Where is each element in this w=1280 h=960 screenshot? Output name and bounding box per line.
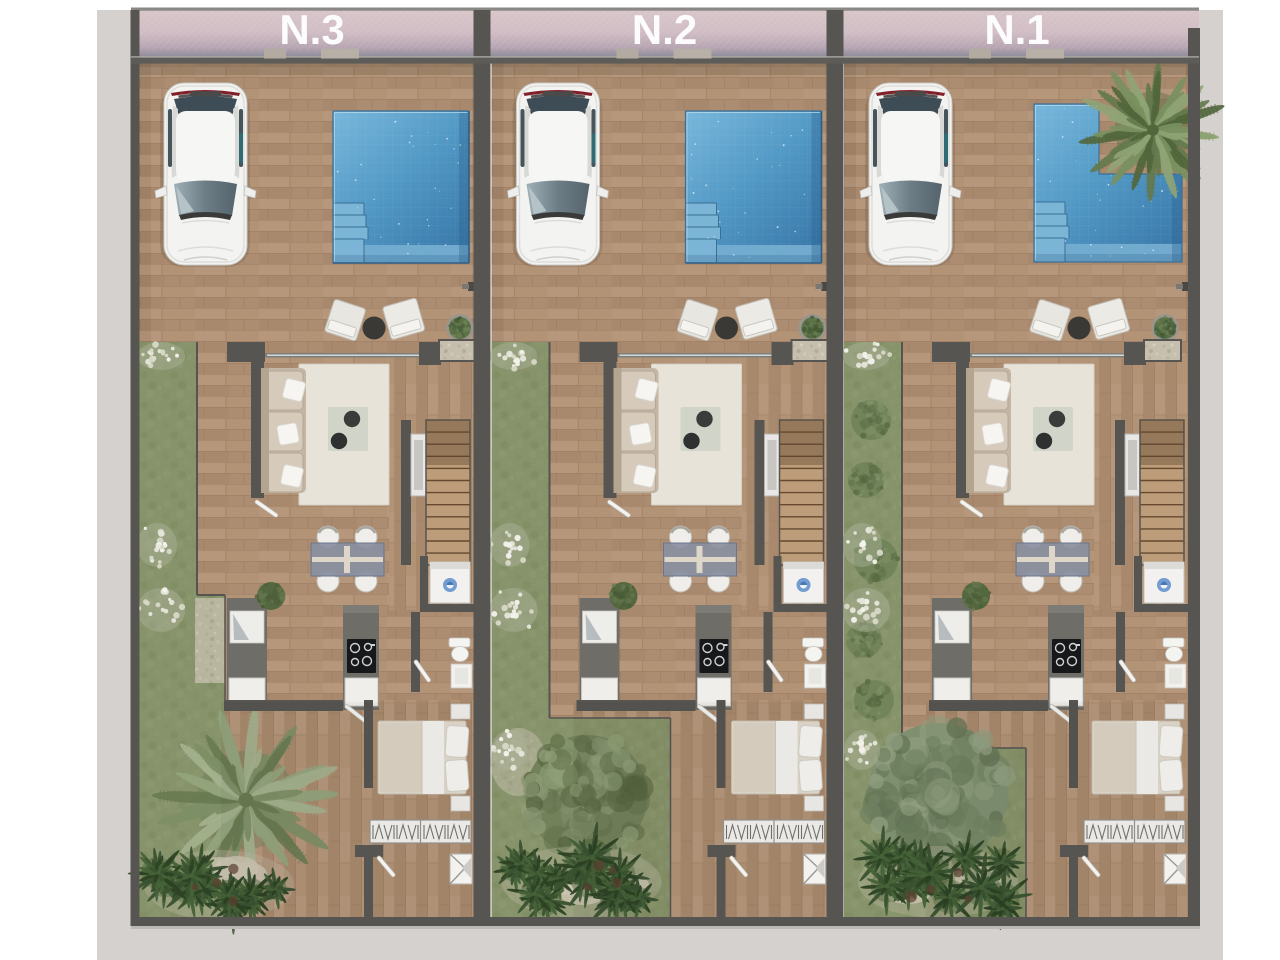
svg-text:N.2: N.2: [632, 6, 697, 53]
svg-text:N.3: N.3: [279, 6, 344, 53]
svg-text:N.1: N.1: [984, 6, 1049, 53]
